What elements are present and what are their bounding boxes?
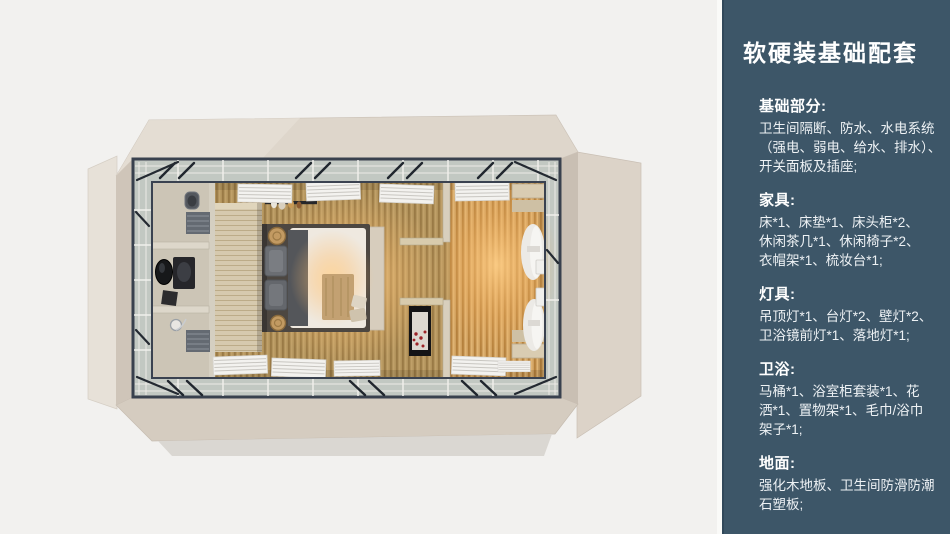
- wall-shelf: [400, 238, 443, 245]
- section-bathroom: 卫浴: 马桶*1、浴室柜套装*1、花 洒*1、置物架*1、毛巾/浴巾 架子*1;: [759, 360, 940, 439]
- bottom-wall-panel: [116, 397, 578, 441]
- section-line: 强化木地板、卫生间防滑防潮: [759, 476, 940, 495]
- wardrobe-body: [215, 203, 262, 352]
- section-line: 吊顶灯*1、台灯*2、壁灯*2、: [759, 307, 940, 326]
- info-sidebar: 软硬装基础配套 基础部分: 卫生间隔断、防水、水电系统 （强电、弱电、给水、排水…: [722, 0, 950, 534]
- bath-stool: [161, 290, 178, 306]
- right-wall-facet: [560, 152, 578, 404]
- section-basics: 基础部分: 卫生间隔断、防水、水电系统 （强电、弱电、给水、排水）、 开关面板及…: [759, 97, 940, 176]
- vanity-mirror: [156, 260, 173, 285]
- section-line: 衣帽架*1、梳妆台*1;: [759, 251, 940, 270]
- section-flooring: 地面: 强化木地板、卫生间防滑防潮 石塑板;: [759, 454, 940, 514]
- shower-head: [171, 320, 182, 331]
- lounge-shelf: [512, 200, 545, 212]
- left-wall-facet: [116, 159, 133, 405]
- section-furniture: 家具: 床*1、床垫*1、床头柜*2、 休闲茶几*1、休闲椅子*2、 衣帽架*1…: [759, 191, 940, 270]
- section-line: 石塑板;: [759, 495, 940, 514]
- section-line: 开关面板及插座;: [759, 157, 940, 176]
- section-heading: 卫浴:: [759, 360, 940, 379]
- section-heading: 基础部分:: [759, 97, 940, 116]
- slide: 软硬装基础配套 基础部分: 卫生间隔断、防水、水电系统 （强电、弱电、给水、排水…: [0, 0, 950, 534]
- section-line: 卫浴镜前灯*1、落地灯*1;: [759, 326, 940, 345]
- wardrobe-cap: [215, 203, 262, 209]
- partition-top: [443, 182, 450, 242]
- section-line: 马桶*1、浴室柜套装*1、花: [759, 382, 940, 401]
- section-line: 洒*1、置物架*1、毛巾/浴巾: [759, 401, 940, 420]
- section-heading: 地面:: [759, 454, 940, 473]
- section-line: 床*1、床垫*1、床头柜*2、: [759, 213, 940, 232]
- floorplan-image: [0, 0, 717, 534]
- partition-bottom: [443, 300, 450, 378]
- wardrobe-shadow: [257, 203, 262, 352]
- throw-blanket: [322, 274, 354, 320]
- headboard: [262, 224, 267, 332]
- bathroom-divider-wall: [152, 242, 209, 249]
- hanging-clothes: [297, 201, 302, 208]
- toilet-bowl: [188, 196, 197, 207]
- section-line: 卫生间隔断、防水、水电系统: [759, 119, 940, 138]
- lounge-shelf: [512, 184, 545, 198]
- floorplan-svg: [0, 0, 717, 534]
- bed-group: [262, 224, 384, 332]
- left-wall-panel: [88, 156, 117, 409]
- section-line: （强电、弱电、给水、排水）、: [759, 138, 940, 157]
- curtain: [523, 299, 545, 351]
- section-lighting: 灯具: 吊顶灯*1、台灯*2、壁灯*2、 卫浴镜前灯*1、落地灯*1;: [759, 285, 940, 345]
- right-wall-panel: [577, 152, 641, 438]
- section-line: 架子*1;: [759, 420, 940, 439]
- sink-basin: [177, 262, 191, 282]
- sidebar-title: 软硬装基础配套: [743, 40, 940, 67]
- section-line: 休闲茶几*1、休闲椅子*2、: [759, 232, 940, 251]
- wall-shelf: [400, 298, 443, 305]
- rattan-stool: [269, 228, 286, 245]
- section-heading: 家具:: [759, 191, 940, 210]
- mirror-highlight: [159, 263, 165, 273]
- wardrobe: [215, 203, 262, 352]
- section-heading: 灯具:: [759, 285, 940, 304]
- bathroom-divider-wall: [152, 306, 209, 313]
- rattan-stool: [271, 316, 286, 331]
